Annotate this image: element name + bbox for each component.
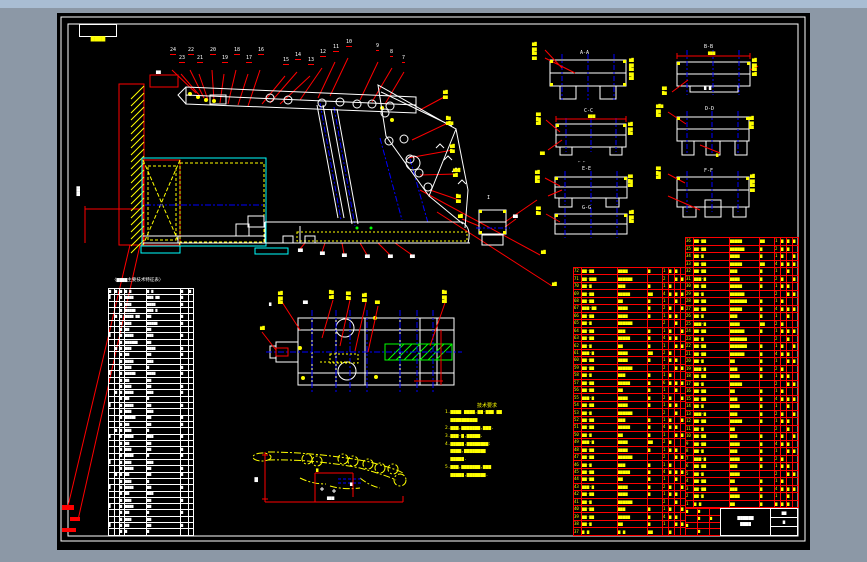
- table-cell: ▆▆▆-▆: [694, 275, 730, 283]
- table-cell: 50: [574, 431, 582, 438]
- table-cell: ▆▆-▆▆: [582, 513, 618, 520]
- table-cell: ▆▆-▆▆: [582, 416, 618, 423]
- table-cell: ▆▆: [618, 297, 648, 304]
- table-cell: [793, 365, 799, 373]
- table-cell: 33: [686, 260, 694, 268]
- table-cell: ▆▆▆: [730, 313, 760, 321]
- table-cell: [793, 320, 799, 328]
- table-cell: ▆▆-▆▆: [582, 476, 618, 483]
- table-cell: ▆ ▆: [618, 528, 648, 536]
- table-cell: 22: [686, 343, 694, 351]
- table-cell: ▆▆▆▆▆▆▆: [730, 335, 760, 343]
- phantom-view-blue: [338, 479, 362, 483]
- table-cell: ▆▆-▆: [582, 520, 618, 527]
- table-cell: ▆▆-▆▆: [694, 268, 730, 276]
- left-table-title: 〈▆▆▆▆主要技术特征表〉: [112, 277, 163, 283]
- table-cell: ▆▆▆▆▆: [730, 238, 760, 246]
- table-cell: 60: [574, 357, 582, 364]
- phantom-view-yellow: [253, 452, 406, 489]
- table-cell: ▆▆-▆: [694, 403, 730, 411]
- table-cell: ▆▆▆▆: [618, 401, 648, 408]
- table-cell: ▆▆-▆▆: [582, 379, 618, 386]
- left-table-grid: ▆▆▆▆ ▆▆ ▆▆▆▊▆▆▆▆▆▆▆▆ ▆▆▆▆▆▆▆▆▆▆▆▆▆▆▆▆▆▆▆…: [108, 288, 194, 536]
- table-cell: [793, 493, 799, 501]
- table-cell: [760, 470, 775, 478]
- table-cell: ▆▆▆▆▆▆: [730, 350, 760, 358]
- table-cell: 31: [686, 275, 694, 283]
- table-cell: ▆▆-▆▆: [582, 424, 618, 431]
- table-cell: ▆▆: [618, 342, 648, 349]
- table-cell: ▆: [648, 468, 663, 475]
- table-cell: ▆▆-▆▆: [582, 453, 618, 460]
- bom-table-right: 36▆▆-▆▆▆▆▆▆▆▆▆1▆▆▆35▆▆-▆▆▆▆▆▆▆▆▆2▆▆34▆▆-…: [685, 237, 798, 508]
- table-cell: 19: [686, 365, 694, 373]
- table-cell: ▆: [793, 470, 799, 478]
- table-cell: ▆▆: [730, 425, 760, 433]
- table-cell: ▆▆: [760, 238, 775, 246]
- table-cell: 13: [686, 410, 694, 418]
- table-cell: 28: [686, 298, 694, 306]
- table-cell: ▆: [648, 416, 663, 423]
- table-cell: ▆▆▆: [618, 282, 648, 289]
- tech-spec-table: ▆▆▆▆ ▆▆ ▆▆▆▊▆▆▆▆▆▆▆▆ ▆▆▆▆▆▆▆▆▆▆▆▆▆▆▆▆▆▆▆…: [108, 288, 193, 536]
- note-line: 1.▆▆▆▆ ▆▆▆▆,▆▆-▆▆▆ ▆▆: [445, 409, 547, 417]
- table-cell: ▆▆-▆▆: [582, 364, 618, 371]
- table-cell: 5: [686, 470, 694, 478]
- technical-notes: 技术要求 1.▆▆▆▆ ▆▆▆▆,▆▆-▆▆▆ ▆▆ ▆▆▆▆▆▆▆▆▆▆2.▆…: [445, 402, 547, 480]
- table-cell: ▆▆▆▆▆▆: [618, 320, 648, 327]
- table-cell: ▆: [648, 282, 663, 289]
- table-cell: ▆ ▆: [582, 528, 618, 536]
- table-cell: ▆▆-▆▆: [582, 387, 618, 394]
- table-cell: ▆▆: [618, 520, 648, 527]
- table-cell: 16: [686, 388, 694, 396]
- table-cell: ▆: [648, 513, 663, 520]
- table-cell: ▆▆▆▆▆: [618, 513, 648, 520]
- table-cell: ▆▆-▆▆: [582, 401, 618, 408]
- table-cell: ▆: [760, 365, 775, 373]
- table-cell: ▆: [648, 334, 663, 341]
- table-cell: ▆▆▆▆: [618, 349, 648, 356]
- table-cell: 72: [574, 268, 582, 275]
- table-cell: ▆▆-▆▆: [694, 283, 730, 291]
- table-cell: ▆▆-▆: [582, 498, 618, 505]
- table-cell: ▆▆: [648, 439, 663, 446]
- section-views-white: [550, 60, 750, 234]
- table-cell: [648, 409, 663, 416]
- table-cell: [793, 425, 799, 433]
- table-cell: [686, 529, 698, 536]
- phantom-view-white: [320, 487, 336, 493]
- table-cell: ▆▆▆▆: [730, 373, 760, 381]
- table-cell: [760, 425, 775, 433]
- table-cell: 71: [574, 275, 582, 282]
- table-cell: ▆▆▆▆: [730, 275, 760, 283]
- table-cell: [793, 478, 799, 486]
- table-cell: ▆▆-▆▆: [694, 373, 730, 381]
- table-cell: 15: [686, 395, 694, 403]
- table-cell: ▆: [648, 342, 663, 349]
- table-cell: 11: [686, 425, 694, 433]
- table-cell: ▆: [793, 448, 799, 456]
- table-cell: ▆▆-▆: [694, 358, 730, 366]
- table-cell: [710, 529, 721, 536]
- table-cell: ▆▆-▆: [582, 282, 618, 289]
- note-line: ▆▆▆▆▆▆▆▆▆▆: [445, 417, 547, 425]
- table-cell: ▆: [760, 485, 775, 493]
- table-cell: ▆▆-▆▆: [582, 468, 618, 475]
- table-cell: 37: [574, 528, 582, 536]
- table-cell: ▆▆▆▆: [618, 439, 648, 446]
- table-cell: ▆▆-▆▆: [582, 491, 618, 498]
- table-cell: 39: [574, 513, 582, 520]
- table-cell: 55: [574, 394, 582, 401]
- table-cell: ▆▆▆: [618, 416, 648, 423]
- table-cell: 27: [686, 305, 694, 313]
- table-cell: [648, 364, 663, 371]
- table-cell: ▆▆▆-▆▆: [582, 305, 618, 312]
- table-cell: [760, 290, 775, 298]
- table-cell: [793, 403, 799, 411]
- table-cell: ▆▆-▆▆: [694, 343, 730, 351]
- table-cell: ▆: [760, 343, 775, 351]
- table-cell: ▆: [648, 297, 663, 304]
- table-cell: ▆▆▆▆▆▆: [618, 409, 648, 416]
- table-cell: 12: [686, 418, 694, 426]
- table-cell: ▆: [760, 478, 775, 486]
- table-cell: 65: [574, 320, 582, 327]
- table-cell: 4: [686, 478, 694, 486]
- table-cell: 24: [686, 328, 694, 336]
- table-cell: ▆▆-▆▆: [582, 290, 618, 297]
- table-cell: ▆▆-▆▆: [582, 357, 618, 364]
- table-cell: [710, 522, 721, 529]
- table-cell: [793, 373, 799, 381]
- table-cell: 41: [574, 498, 582, 505]
- table-cell: ▆: [648, 305, 663, 312]
- table-cell: 23: [686, 335, 694, 343]
- note-line: 5.▆▆▆,▆▆▆▆▆▆▆,▆▆▆: [445, 464, 547, 472]
- table-cell: ▆: [760, 313, 775, 321]
- table-cell: 36: [686, 238, 694, 246]
- note-line: 4.▆▆▆▆▆,▆▆▆▆▆▆▆▆:: [445, 441, 547, 449]
- table-cell: ▆▆-▆: [694, 493, 730, 501]
- table-cell: ▆: [760, 418, 775, 426]
- title-block-cell-1: ▆▆: [771, 509, 797, 518]
- bom-a-grid: 72▆▆-▆▆▆▆▆▆▆1▆▆71▆▆-▆▆▆▆▆▆▆▆▆2▆▆70▆▆-▆▆▆…: [573, 267, 686, 536]
- table-cell: 32: [686, 268, 694, 276]
- table-cell: 62: [574, 342, 582, 349]
- table-cell: ▆: [648, 394, 663, 401]
- table-cell: ▆▆-▆: [582, 342, 618, 349]
- table-cell: [760, 335, 775, 343]
- table-cell: ▆▆▆: [730, 268, 760, 276]
- table-cell: ▆: [760, 283, 775, 291]
- table-cell: 47: [574, 453, 582, 460]
- table-cell: ▆: [760, 373, 775, 381]
- title-block-cell-3: [771, 527, 797, 535]
- table-cell: ▆▆▆▆▆: [618, 379, 648, 386]
- table-cell: 14: [686, 403, 694, 411]
- table-cell: 42: [574, 491, 582, 498]
- table-cell: ▆▆▆▆▆▆: [730, 245, 760, 253]
- table-cell: ▆▆-▆▆: [582, 334, 618, 341]
- table-cell: ▆: [648, 379, 663, 386]
- table-cell: ▆▆▆: [730, 395, 760, 403]
- table-cell: 44: [574, 476, 582, 483]
- table-cell: [793, 440, 799, 448]
- table-cell: ▆▆-▆▆: [694, 305, 730, 313]
- table-cell: ▆: [698, 529, 710, 536]
- table-cell: [698, 522, 710, 529]
- table-cell: ▆▆: [618, 476, 648, 483]
- table-cell: ▆: [648, 461, 663, 468]
- table-cell: ▆▆-▆▆: [694, 433, 730, 441]
- table-cell: ▆▆-▆: [694, 335, 730, 343]
- table-cell: ▆▆▆▆▆▆: [730, 290, 760, 298]
- table-cell: ▆▆▆-▆: [582, 439, 618, 446]
- table-cell: ▆▆-▆▆: [694, 388, 730, 396]
- table-cell: [793, 418, 799, 426]
- table-cell: ▆: [760, 268, 775, 276]
- table-cell: 1: [686, 500, 694, 508]
- table-cell: 43: [574, 483, 582, 490]
- table-cell: ▆▆▆-▆: [582, 483, 618, 490]
- table-cell: 69: [574, 290, 582, 297]
- table-cell: ▆: [698, 515, 710, 522]
- table-cell: ▆▆: [730, 388, 760, 396]
- table-cell: 46: [574, 461, 582, 468]
- table-cell: ▆▆▆▆▆▆: [618, 364, 648, 371]
- notes-title: 技术要求: [477, 402, 547, 409]
- table-cell: ▆▆▆▆: [618, 491, 648, 498]
- table-cell: 45: [574, 468, 582, 475]
- table-cell: ▆: [686, 509, 698, 516]
- table-cell: 52: [574, 416, 582, 423]
- table-cell: ▆▆▆▆▆▆: [730, 328, 760, 336]
- table-cell: ▆▆-▆▆: [694, 463, 730, 471]
- table-cell: 20: [686, 358, 694, 366]
- signature-grid: ▆▆▆▆▆▆: [685, 508, 720, 536]
- table-cell: ▆▆▆▆▆▆: [618, 453, 648, 460]
- table-cell: ▆▆-▆▆: [582, 268, 618, 275]
- table-cell: ▆▆: [760, 260, 775, 268]
- table-cell: ▆: [793, 358, 799, 366]
- table-cell: 63: [574, 334, 582, 341]
- table-cell: 29: [686, 290, 694, 298]
- table-cell: 54: [574, 401, 582, 408]
- table-cell: 49: [574, 439, 582, 446]
- table-cell: ▆: [760, 275, 775, 283]
- table-cell: [793, 463, 799, 471]
- table-cell: ▆▆-▆: [694, 253, 730, 261]
- table-cell: ▆▆▆▆▆: [618, 290, 648, 297]
- table-cell: 21: [686, 350, 694, 358]
- table-cell: 57: [574, 379, 582, 386]
- table-cell: ▆▆▆▆: [618, 446, 648, 453]
- table-cell: [686, 515, 698, 522]
- table-cell: ▆: [793, 305, 799, 313]
- table-cell: ▆▆▆▆▆▆▆: [730, 298, 760, 306]
- table-cell: ▆: [760, 298, 775, 306]
- table-cell: ▆: [760, 433, 775, 441]
- table-cell: ▆▆▆▆: [618, 483, 648, 490]
- table-cell: 48: [574, 446, 582, 453]
- table-cell: 10: [686, 433, 694, 441]
- corner-label-box: ▆▆▆▆: [79, 24, 117, 37]
- table-cell: ▆▆-▆▆: [694, 238, 730, 246]
- table-cell: ▆: [147, 529, 181, 536]
- table-cell: ▆▆-▆: [582, 409, 618, 416]
- table-cell: 56: [574, 387, 582, 394]
- table-cell: ▆: [760, 463, 775, 471]
- table-cell: ▆▆▆: [618, 327, 648, 334]
- table-cell: 18: [686, 373, 694, 381]
- main-elevation-blue: [145, 103, 428, 226]
- table-cell: ▆▆▆▆▆▆▆: [730, 343, 760, 351]
- note-line: ▆▆▆▆▆.: [445, 456, 547, 464]
- table-cell: ▆▆-▆▆: [694, 245, 730, 253]
- title-block-name: ▆▆▆▆▆▆ ▆▆▆▆: [721, 509, 771, 535]
- table-cell: ▆▆▆: [730, 485, 760, 493]
- table-cell: ▆: [648, 506, 663, 513]
- table-cell: ▆▆▆▆▆: [730, 260, 760, 268]
- table-cell: 59: [574, 364, 582, 371]
- table-cell: 40: [574, 506, 582, 513]
- table-cell: ▆▆-▆▆: [694, 440, 730, 448]
- table-cell: ▆▆▆-▆: [582, 349, 618, 356]
- table-cell: ▆▆-▆: [582, 431, 618, 438]
- table-cell: ▆: [793, 380, 799, 388]
- table-cell: ▆: [648, 268, 663, 275]
- table-cell: ▆: [793, 395, 799, 403]
- table-cell: ▆▆: [648, 290, 663, 297]
- bom-b-grid: 36▆▆-▆▆▆▆▆▆▆▆▆1▆▆▆35▆▆-▆▆▆▆▆▆▆▆▆2▆▆34▆▆-…: [685, 237, 799, 508]
- mini-grid-grid: ▆▆▆▆▆▆: [685, 508, 721, 536]
- table-cell: ▆▆-▆▆: [582, 327, 618, 334]
- table-cell: 6: [686, 463, 694, 471]
- table-cell: ▆▆-▆▆: [582, 297, 618, 304]
- table-cell: ▆▆▆▆: [730, 320, 760, 328]
- table-cell: ▆: [760, 410, 775, 418]
- table-cell: ▆: [648, 372, 663, 379]
- table-cell: ▆: [793, 343, 799, 351]
- table-cell: ▆▆▆▆: [730, 440, 760, 448]
- table-cell: ▆▆: [730, 358, 760, 366]
- table-cell: [648, 498, 663, 505]
- table-cell: ▆▆-▆▆: [694, 478, 730, 486]
- section-views-yellow: [550, 60, 750, 217]
- table-cell: ▆: [793, 328, 799, 336]
- table-cell: 64: [574, 327, 582, 334]
- table-cell: ▆: [793, 433, 799, 441]
- table-cell: ▆▆▆▆▆: [618, 424, 648, 431]
- table-cell: ▆▆▆▆: [730, 253, 760, 261]
- table-cell: 7: [686, 455, 694, 463]
- table-cell: ▆▆-▆▆: [694, 328, 730, 336]
- table-cell: ▆: [648, 483, 663, 490]
- table-cell: 34: [686, 253, 694, 261]
- section-views-red: [545, 50, 758, 222]
- table-cell: 8: [686, 448, 694, 456]
- table-cell: ▆▆▆▆▆: [730, 305, 760, 313]
- title-block-cell-2: ▆: [771, 518, 797, 527]
- table-cell: ▆: [125, 529, 147, 536]
- table-cell: [648, 320, 663, 327]
- table-cell: ▆▆▆▆▆: [730, 418, 760, 426]
- table-cell: ▆: [648, 520, 663, 527]
- table-cell: ▆▆▆: [730, 433, 760, 441]
- table-cell: [793, 335, 799, 343]
- table-cell: ▆▆: [618, 431, 648, 438]
- table-cell: ▆: [793, 485, 799, 493]
- note-line: ▆▆▆▆,▆▆▆▆▆▆▆▆: [445, 448, 547, 456]
- section-views-blue: [562, 50, 739, 238]
- main-elevation-green: [356, 227, 373, 230]
- table-cell: ▆▆▆-▆: [582, 394, 618, 401]
- table-cell: ▆: [793, 290, 799, 298]
- table-cell: ▆▆▆: [618, 372, 648, 379]
- table-cell: ▆: [793, 253, 799, 261]
- table-cell: ▆▆▆▆: [618, 305, 648, 312]
- table-cell: ▆: [686, 522, 698, 529]
- table-cell: 26: [686, 313, 694, 321]
- table-cell: ▆: [760, 328, 775, 336]
- table-cell: ▆▆-▆: [582, 320, 618, 327]
- table-cell: 58: [574, 372, 582, 379]
- table-cell: ▆▆▆▆: [618, 312, 648, 319]
- table-cell: [189, 529, 194, 536]
- table-cell: ▆▆▆▆: [730, 470, 760, 478]
- table-cell: ▆: [648, 401, 663, 408]
- table-cell: ▆▆▆▆: [618, 357, 648, 364]
- note-line: 3.▆▆▆-▆,▆▆▆▆▆.: [445, 433, 547, 441]
- table-cell: [793, 283, 799, 291]
- table-cell: ▆▆-▆▆: [582, 446, 618, 453]
- table-cell: 67: [574, 305, 582, 312]
- title-block-name-line2: ▆▆▆▆: [721, 522, 770, 528]
- table-cell: ▆▆-▆▆: [694, 485, 730, 493]
- table-cell: ▆: [648, 357, 663, 364]
- table-cell: ▆: [698, 509, 710, 516]
- table-cell: ▆: [760, 253, 775, 261]
- corner-label-text: ▆▆▆▆: [91, 35, 105, 42]
- table-cell: ▆▆-▆▆: [694, 260, 730, 268]
- table-cell: ▆▆: [760, 320, 775, 328]
- table-cell: ▆▆▆: [618, 461, 648, 468]
- table-cell: ▆: [648, 431, 663, 438]
- table-cell: ▆: [648, 476, 663, 483]
- table-cell: ▆▆-▆▆: [694, 350, 730, 358]
- table-cell: [648, 275, 663, 282]
- table-cell: 2: [686, 493, 694, 501]
- note-line: ▆▆▆▆▆,▆▆▆▆▆▆▆.: [445, 472, 547, 480]
- table-cell: 53: [574, 409, 582, 416]
- table-cell: ▆▆▆-▆: [694, 365, 730, 373]
- table-cell: ▆▆-▆: [694, 448, 730, 456]
- table-cell: [793, 500, 799, 508]
- table-cell: [793, 245, 799, 253]
- table-cell: [793, 298, 799, 306]
- table-cell: ▆: [760, 245, 775, 253]
- table-cell: ▆▆-▆▆: [694, 298, 730, 306]
- table-cell: ▆▆▆: [730, 463, 760, 471]
- title-block-cells: ▆▆ ▆: [771, 509, 797, 535]
- table-cell: ▆: [648, 387, 663, 394]
- table-cell: ▆▆-▆▆: [694, 418, 730, 426]
- table-cell: ▆ ▆: [694, 500, 730, 508]
- table-cell: ▆: [760, 403, 775, 411]
